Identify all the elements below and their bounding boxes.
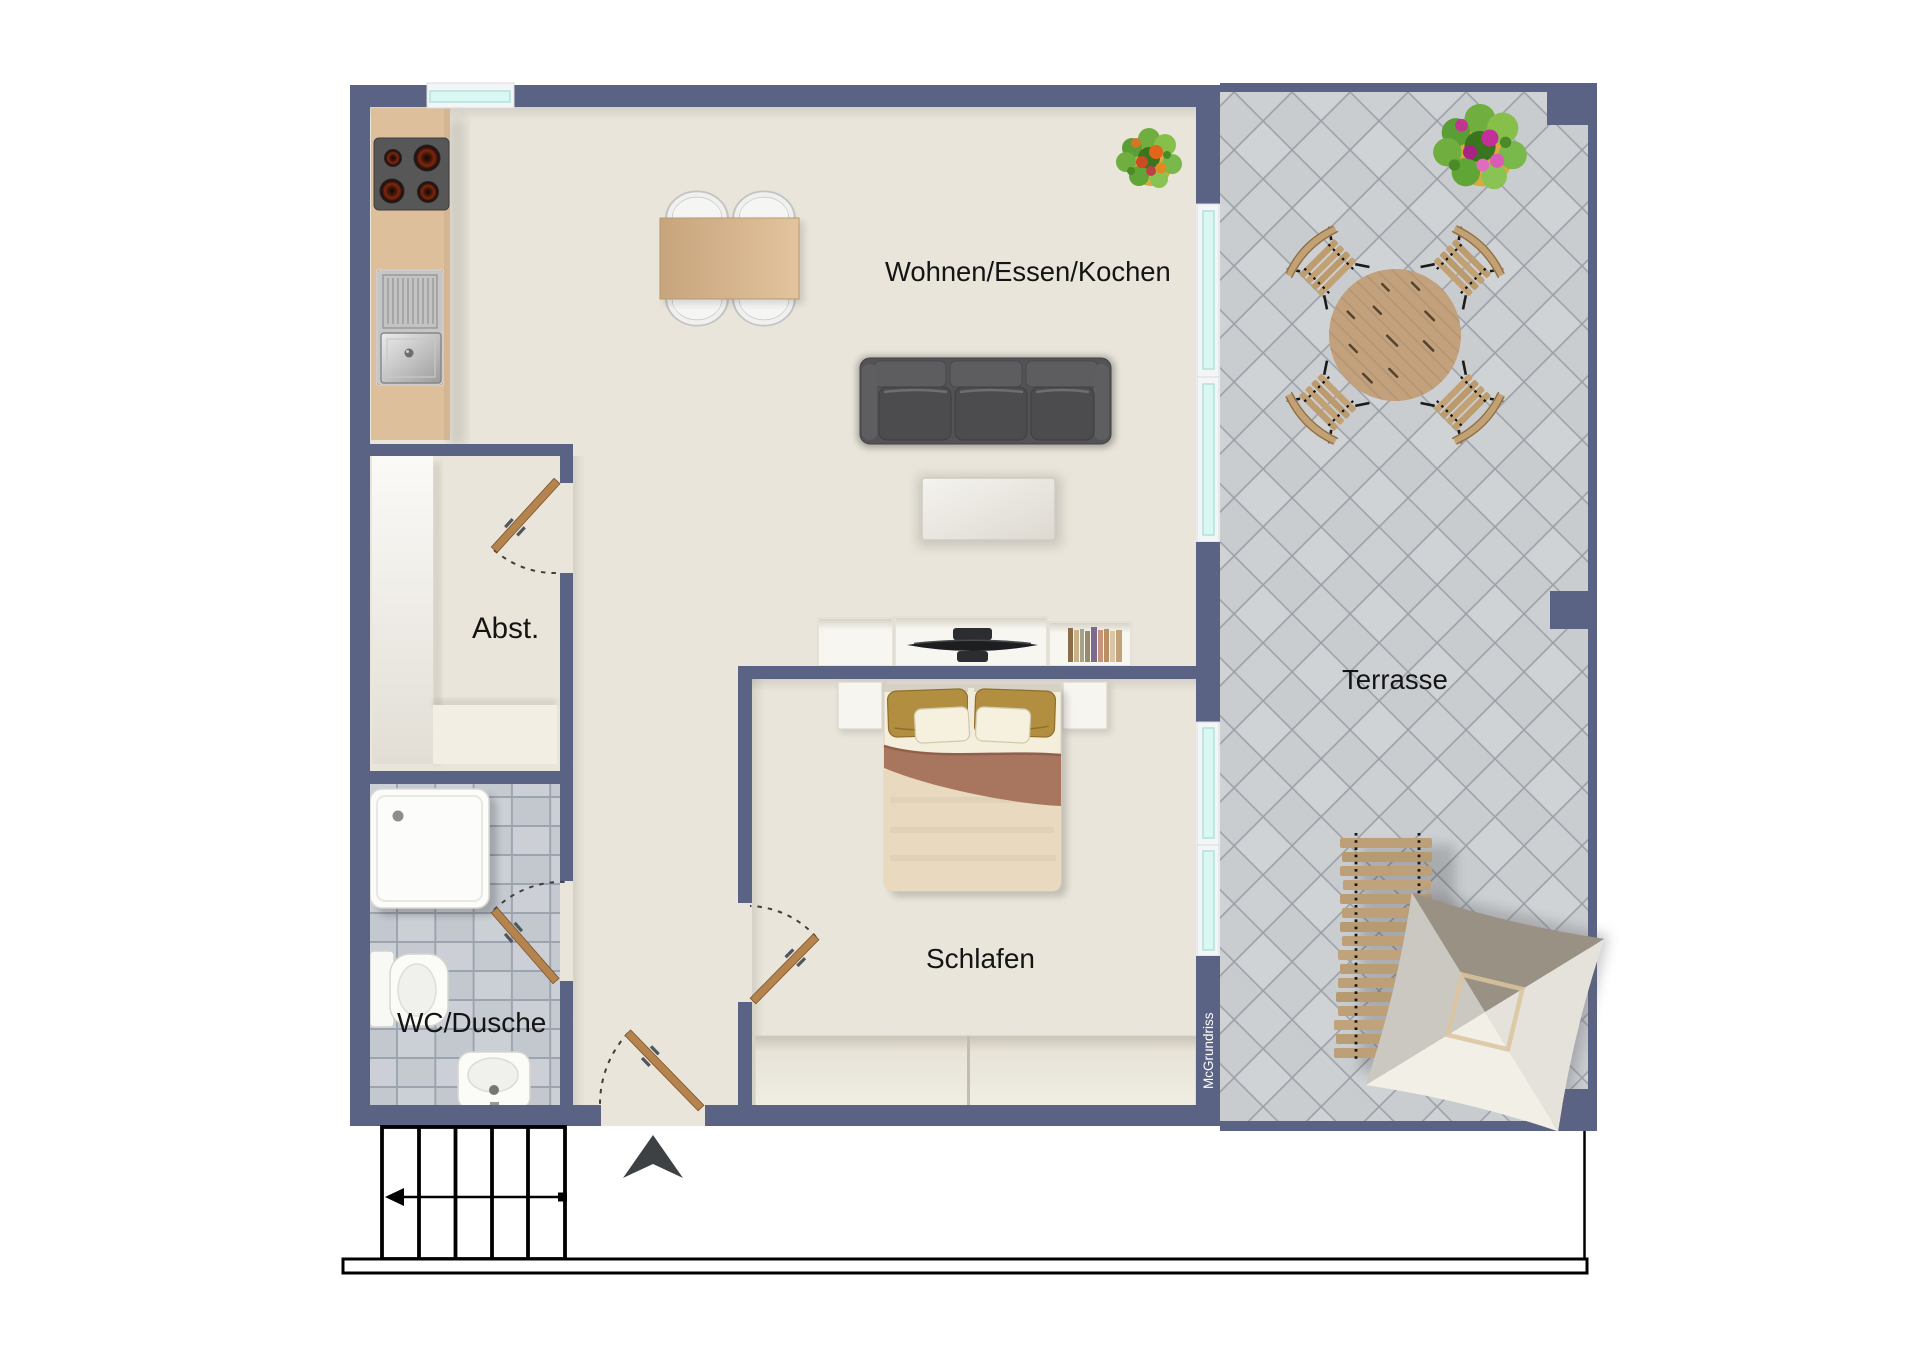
svg-text:WC/Dusche: WC/Dusche (397, 1007, 546, 1038)
svg-text:Terrasse: Terrasse (1342, 664, 1448, 695)
svg-text:McGrundriss: McGrundriss (1201, 1012, 1216, 1089)
svg-text:Abst.: Abst. (472, 612, 539, 645)
svg-text:Schlafen: Schlafen (926, 943, 1035, 974)
svg-text:Wohnen/Essen/Kochen: Wohnen/Essen/Kochen (885, 256, 1171, 287)
